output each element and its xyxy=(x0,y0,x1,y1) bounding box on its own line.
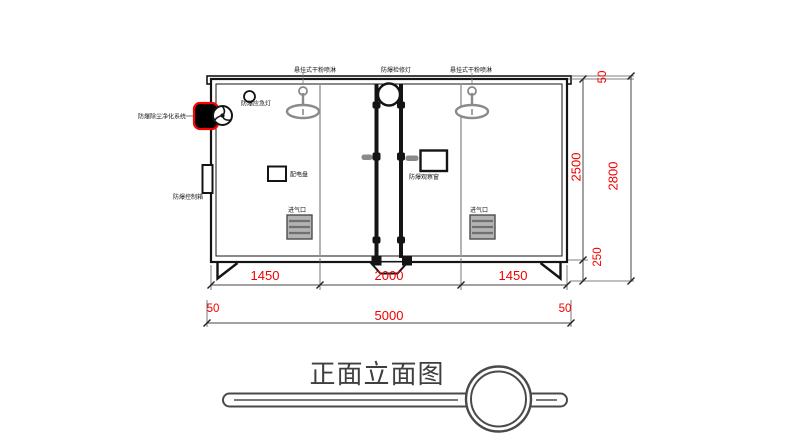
purification-unit xyxy=(186,103,232,129)
power-panel-label: 配电盘 xyxy=(290,171,308,179)
dim-overall-width: 5000 xyxy=(375,308,404,323)
purification-label: 防爆除尘净化系统 xyxy=(138,113,186,121)
foot-right xyxy=(541,263,561,279)
power-panel-box xyxy=(268,167,286,182)
air-inlet-left-grille xyxy=(287,215,312,239)
inspection-light-arc xyxy=(378,84,400,106)
air-inlet-left-label: 进气口 xyxy=(288,206,306,214)
elevation-drawing: 悬挂式干粉喷淋 防爆检修灯 悬挂式干粉喷淋 防爆应急灯 防爆除尘净化系统 防爆控… xyxy=(0,0,800,445)
observation-window-label: 防爆观察窗 xyxy=(409,173,439,181)
dim-width-left: 1450 xyxy=(251,268,280,283)
control-box xyxy=(203,165,213,193)
dimension-row-overall: 50 5000 50 xyxy=(204,300,575,327)
dim-roof-gap: 50 xyxy=(597,71,609,84)
elevation-drawing-page: 悬挂式干粉喷淋 防爆检修灯 悬挂式干粉喷淋 防爆应急灯 防爆除尘净化系统 防爆控… xyxy=(0,0,800,445)
pole-connector-right xyxy=(406,156,419,162)
pole-connector-left xyxy=(362,155,373,161)
detail-bubble-inner-circle xyxy=(471,372,526,427)
control-box-label: 防爆控制箱 xyxy=(173,193,203,201)
dimension-column-heights: 50 2500 2800 250 xyxy=(568,71,635,285)
dim-overall-height: 2800 xyxy=(605,162,620,191)
emergency-light xyxy=(244,91,255,102)
inspection-light-label: 防爆检修灯 xyxy=(381,66,411,74)
spray-left-label: 悬挂式干粉喷淋 xyxy=(294,66,336,74)
observation-window-box xyxy=(421,151,448,172)
dim-width-right: 1450 xyxy=(499,268,528,283)
air-inlet-right-label: 进气口 xyxy=(470,206,488,214)
dim-body-height: 2500 xyxy=(568,153,583,182)
dim-base-height: 250 xyxy=(592,247,604,266)
drawing-title: 正面立面图 xyxy=(309,360,444,389)
dim-overhang-right: 50 xyxy=(559,303,572,315)
spray-right-label: 悬挂式干粉喷淋 xyxy=(450,66,492,74)
emergency-light-label: 防爆应急灯 xyxy=(241,100,271,108)
foot-left xyxy=(218,263,238,279)
air-inlet-right-grille xyxy=(470,215,495,239)
dim-width-center: 2000 xyxy=(375,268,404,283)
dim-overhang-left: 50 xyxy=(207,303,220,315)
